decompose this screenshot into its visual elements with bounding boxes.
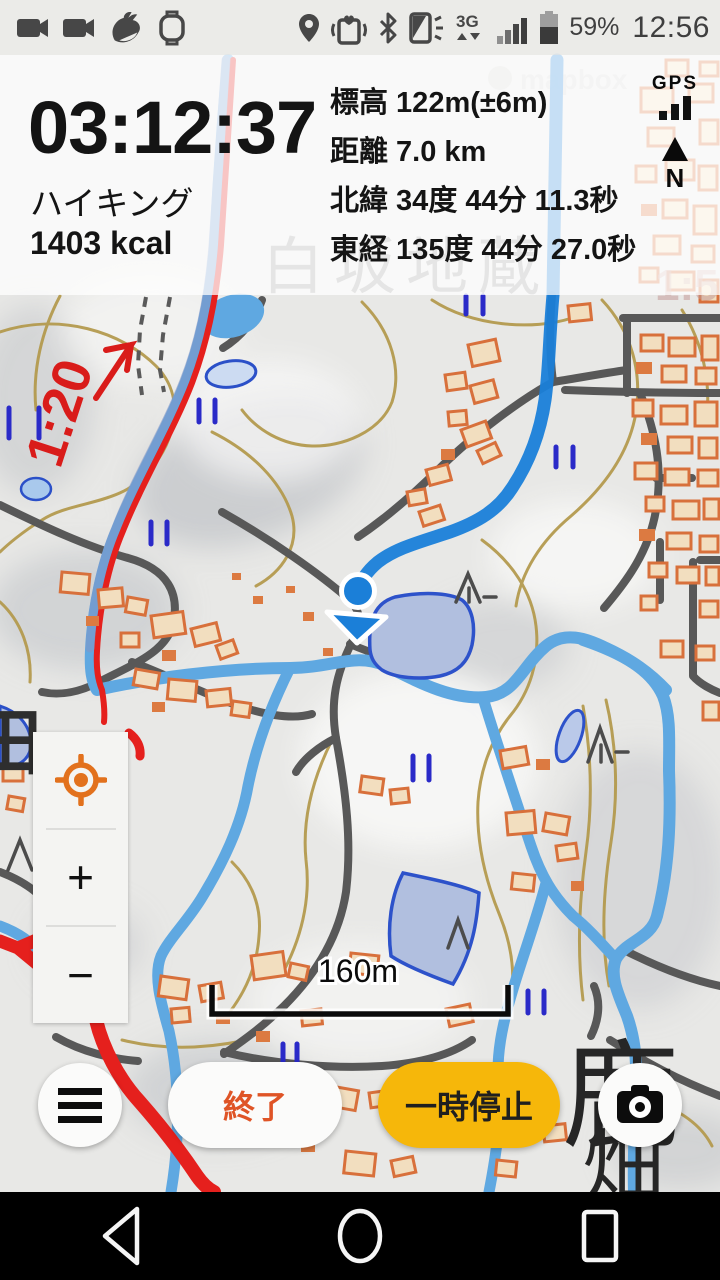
app-screen: mapbox 白坂地蔵 1:5 1:20 田 鹿 畑 3G [0, 0, 720, 1280]
compass-label: N [652, 167, 698, 190]
activity-type: ハイキング [30, 177, 193, 225]
gps-label: GPS [652, 73, 698, 95]
menu-button[interactable] [38, 1063, 122, 1147]
distance: 距離 7.0 km [330, 128, 636, 177]
gps-status: GPS N [652, 73, 698, 190]
pause-button[interactable]: 一時停止 [378, 1062, 560, 1148]
clock: 12:56 [628, 11, 710, 45]
network-3g-icon: 3G [454, 11, 488, 45]
phone-heart-vibrate-icon [331, 11, 367, 45]
home-icon [336, 1207, 384, 1265]
elevation: 標高 122m(±6m) [330, 79, 636, 128]
longitude: 東経 135度 44分 27.0秒 [330, 226, 636, 275]
bird-app-icon [108, 10, 144, 46]
home-button[interactable] [240, 1207, 480, 1265]
back-icon [100, 1205, 140, 1267]
hamburger-icon [58, 1088, 102, 1123]
back-button[interactable] [0, 1205, 240, 1267]
location-pin-icon [296, 12, 322, 44]
latitude: 北緯 34度 44分 11.3秒 [330, 177, 636, 226]
zoom-out-button[interactable]: − [33, 928, 128, 1023]
camera-button[interactable] [598, 1063, 682, 1147]
video-camera-icon [62, 12, 96, 44]
svg-text:3G: 3G [456, 12, 479, 31]
gps-signal-icon [658, 95, 692, 121]
screen-flash-icon [409, 11, 445, 45]
bluetooth-icon [376, 12, 400, 44]
stats-panel: 03:12:37 ハイキング 1403 kcal 標高 122m(±6m) 距離… [0, 55, 720, 295]
calories: 1403 kcal [30, 225, 172, 262]
end-button[interactable]: 終了 [168, 1062, 342, 1148]
compass-arrow-icon [660, 136, 690, 162]
scale-label: 160m [318, 956, 398, 989]
recents-button[interactable] [480, 1209, 720, 1263]
status-bar: 3G 59% 12:56 [0, 0, 720, 55]
battery-icon [538, 9, 560, 47]
system-icons: 3G 59% 12:56 [296, 9, 720, 47]
android-nav-bar [0, 1192, 720, 1280]
elapsed-timer: 03:12:37 [28, 91, 316, 165]
stat-lines: 標高 122m(±6m) 距離 7.0 km 北緯 34度 44分 11.3秒 … [330, 79, 636, 275]
compass-north: N [652, 136, 698, 190]
recents-icon [581, 1209, 619, 1263]
battery-percent: 59% [569, 13, 619, 42]
map-control-panel: + − [33, 732, 128, 1023]
video-camera-icon [16, 12, 50, 44]
camera-icon [616, 1084, 664, 1126]
signal-bars-icon [497, 12, 529, 44]
locate-button[interactable] [33, 732, 128, 827]
zoom-in-button[interactable]: + [33, 830, 128, 925]
locate-target-icon [55, 754, 107, 806]
notification-icons [0, 10, 188, 46]
scale-bar: 160m [200, 956, 530, 1026]
smartwatch-icon [156, 10, 188, 46]
